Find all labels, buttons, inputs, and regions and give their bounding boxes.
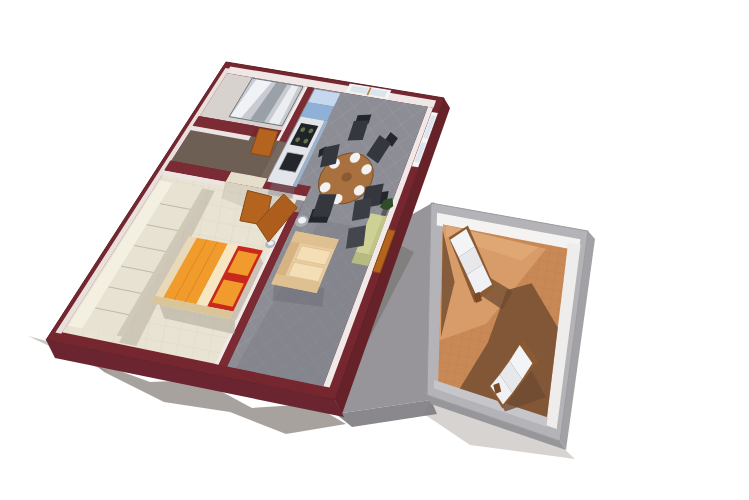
shape-layer (28, 62, 595, 459)
floorplan-stage (0, 0, 749, 500)
armchair-dark-1 (352, 198, 372, 222)
floorplan-3d-render (0, 0, 749, 500)
armchair-dark-2 (346, 225, 366, 249)
